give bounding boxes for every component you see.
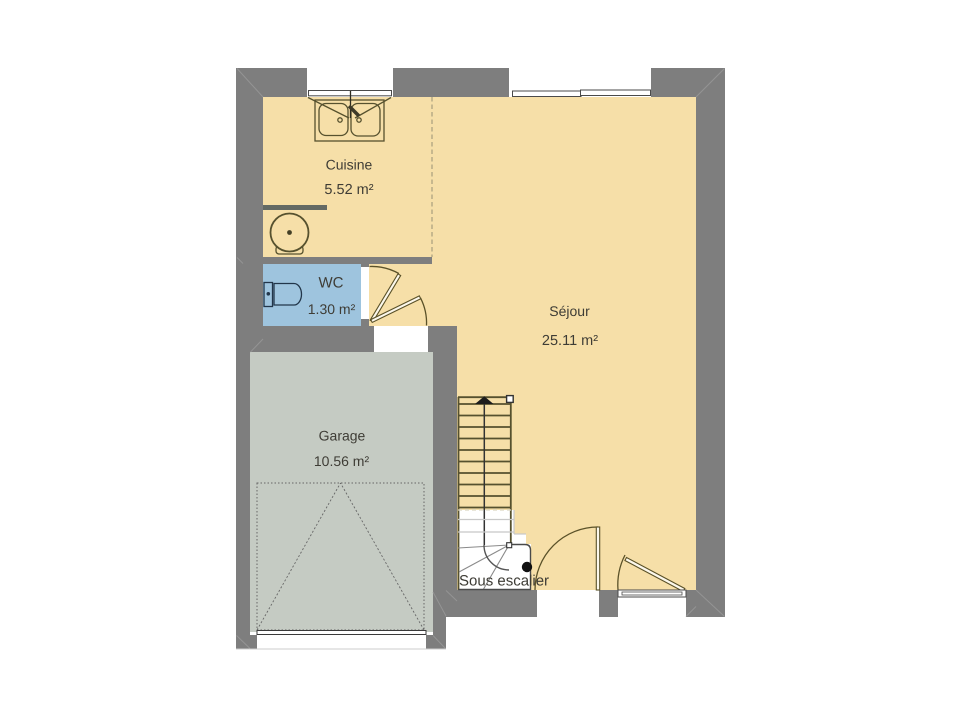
- svg-text:5.52 m²: 5.52 m²: [324, 182, 373, 198]
- svg-text:Sous escalier: Sous escalier: [459, 573, 549, 590]
- svg-text:10.56 m²: 10.56 m²: [314, 453, 370, 469]
- svg-text:Séjour: Séjour: [549, 303, 590, 319]
- svg-text:Cuisine: Cuisine: [326, 157, 373, 173]
- svg-text:25.11 m²: 25.11 m²: [542, 333, 598, 349]
- svg-text:WC: WC: [319, 275, 344, 292]
- svg-text:1.30 m²: 1.30 m²: [308, 301, 356, 317]
- svg-text:Garage: Garage: [319, 428, 366, 444]
